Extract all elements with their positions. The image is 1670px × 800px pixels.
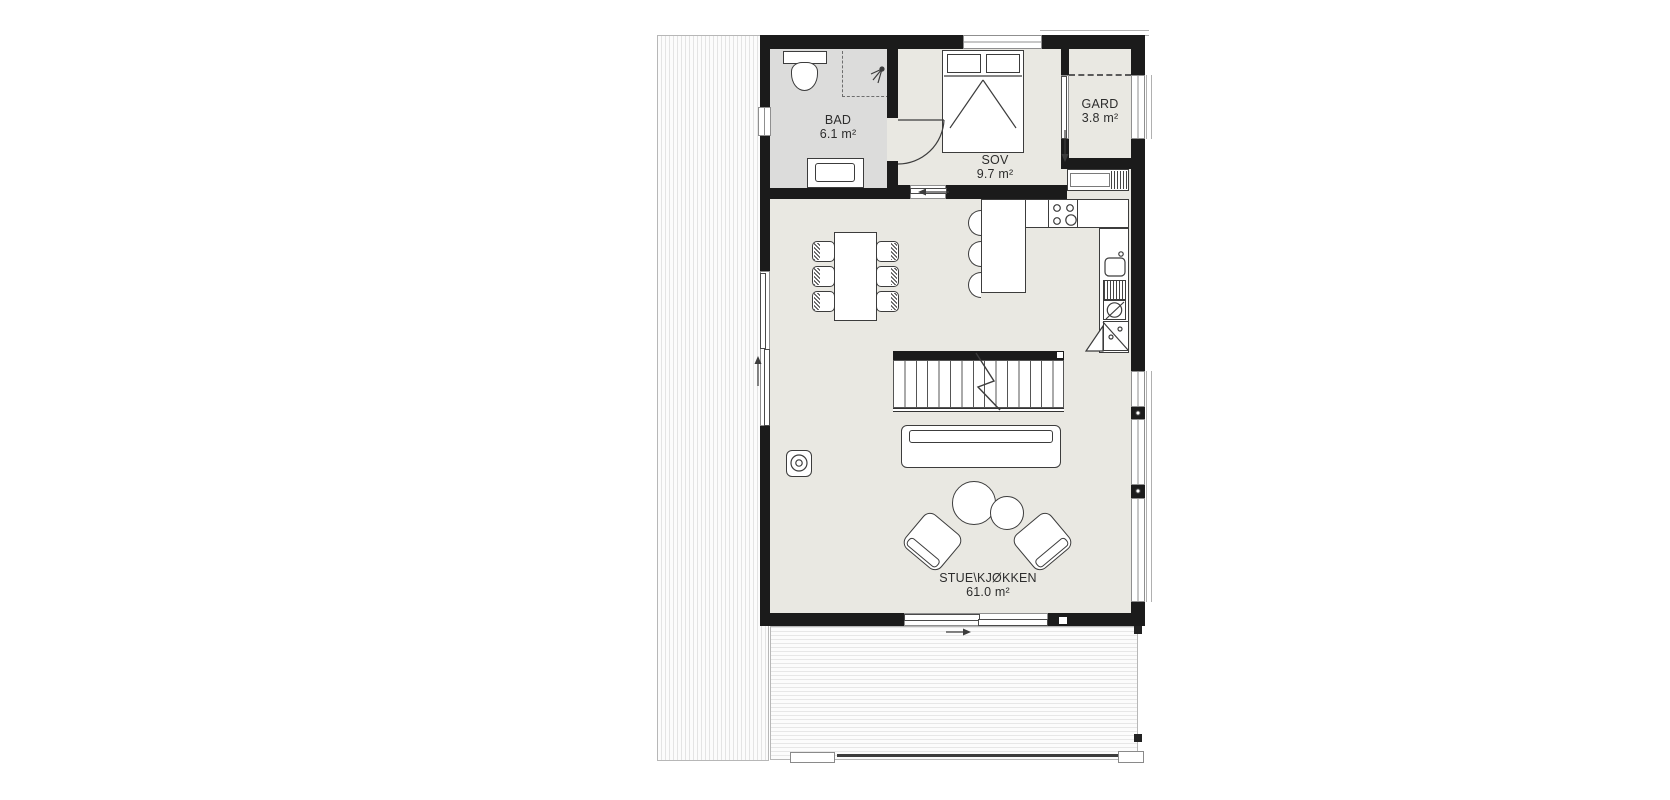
dining-chair-2 <box>812 266 835 287</box>
kitchen-island <box>981 199 1026 293</box>
bed-pillow-right <box>986 54 1020 73</box>
stair-base-line <box>893 408 1064 412</box>
wall-bedroom-bottom-a <box>898 185 910 199</box>
deck-railing <box>837 754 1120 757</box>
room-area-stue: 61.0 m² <box>908 585 1068 599</box>
wall-top-right <box>1042 35 1145 49</box>
wall-bathroom-right-lower <box>887 161 898 188</box>
wall-bathroom-right-upper <box>887 35 898 118</box>
wall-bottom-left <box>760 613 904 626</box>
terrace-door-left-panel-a <box>760 273 766 349</box>
dining-chair-1 <box>812 241 835 262</box>
wall-right-b <box>1131 139 1145 371</box>
wall-bedroom-bottom-b <box>946 185 1067 199</box>
wall-wardrobe-bottom <box>1061 158 1131 169</box>
window-sill-right-lower <box>1146 371 1152 602</box>
sofa-back-cushions <box>909 430 1053 443</box>
side-deck <box>657 35 769 761</box>
wall-left-upper <box>760 35 770 107</box>
cooktop <box>1048 199 1078 228</box>
room-label-bad: BAD 6.1 m² <box>788 113 888 141</box>
dining-table <box>834 232 877 321</box>
dining-chair-6 <box>876 291 899 312</box>
wall-right-a <box>1131 35 1145 75</box>
vanity-basin <box>815 163 855 182</box>
tall-cabinet-hatch <box>1111 171 1128 189</box>
wood-stove <box>786 450 812 477</box>
room-area-sov: 9.7 m² <box>945 167 1045 181</box>
wall-right-d <box>1131 485 1145 498</box>
corner-cabinet <box>1103 321 1129 351</box>
wall-right-c <box>1131 407 1145 419</box>
room-label-sov: SOV 9.7 m² <box>945 153 1045 181</box>
bedroom-sliding-door-panel <box>910 188 947 194</box>
railing-post-right <box>1118 751 1144 763</box>
wall-notch-stair <box>1057 352 1063 358</box>
room-name-bad: BAD <box>788 113 888 127</box>
tall-cabinet-shelf <box>1070 173 1110 187</box>
wall-wardrobe-left-lower <box>1061 139 1069 158</box>
wall-notch-bottom <box>1059 617 1067 624</box>
bathroom-window <box>758 107 771 136</box>
room-label-gard: GARD 3.8 m² <box>1050 97 1150 125</box>
closet-dashed-front <box>1069 74 1131 76</box>
coffee-table-small <box>990 496 1024 530</box>
bedroom-window <box>963 35 1042 49</box>
room-name-sov: SOV <box>945 153 1045 167</box>
wall-bathroom-bottom <box>760 188 898 199</box>
terrace-door-left-panel-b <box>764 349 770 426</box>
room-area-bad: 6.1 m² <box>788 127 888 141</box>
room-name-stue: STUE\KJØKKEN <box>908 571 1068 585</box>
floor-plan: BAD 6.1 m² SOV 9.7 m² GARD 3.8 m² STUE\K… <box>657 30 1153 770</box>
room-label-stue: STUE\KJØKKEN 61.0 m² <box>908 571 1068 599</box>
deck-post-top <box>1134 626 1142 634</box>
wall-left-lower <box>760 426 770 626</box>
stair-top-wall <box>893 351 1064 360</box>
coffee-table-large <box>952 481 996 525</box>
terrace-door-bottom-panel-a <box>904 614 980 621</box>
wall-top-left <box>760 35 963 49</box>
railing-post-left <box>790 752 835 763</box>
bed-pillow-left <box>947 54 981 73</box>
dining-chair-5 <box>876 266 899 287</box>
room-name-gard: GARD <box>1050 97 1150 111</box>
shower-corner <box>842 51 889 97</box>
wall-left-middle <box>760 136 770 271</box>
dining-chair-4 <box>876 241 899 262</box>
living-window-c <box>1131 498 1145 602</box>
living-window-a <box>1131 371 1145 407</box>
wall-wardrobe-left-upper <box>1061 35 1069 75</box>
terrace-door-bottom-panel-b <box>978 619 1048 626</box>
staircase <box>893 360 1064 408</box>
room-area-gard: 3.8 m² <box>1050 111 1150 125</box>
front-deck <box>770 626 1138 760</box>
deck-post-bottom <box>1134 734 1142 742</box>
dining-chair-3 <box>812 291 835 312</box>
washing-appliance <box>1103 300 1126 320</box>
living-window-b <box>1131 419 1145 485</box>
dishwasher <box>1103 280 1126 300</box>
